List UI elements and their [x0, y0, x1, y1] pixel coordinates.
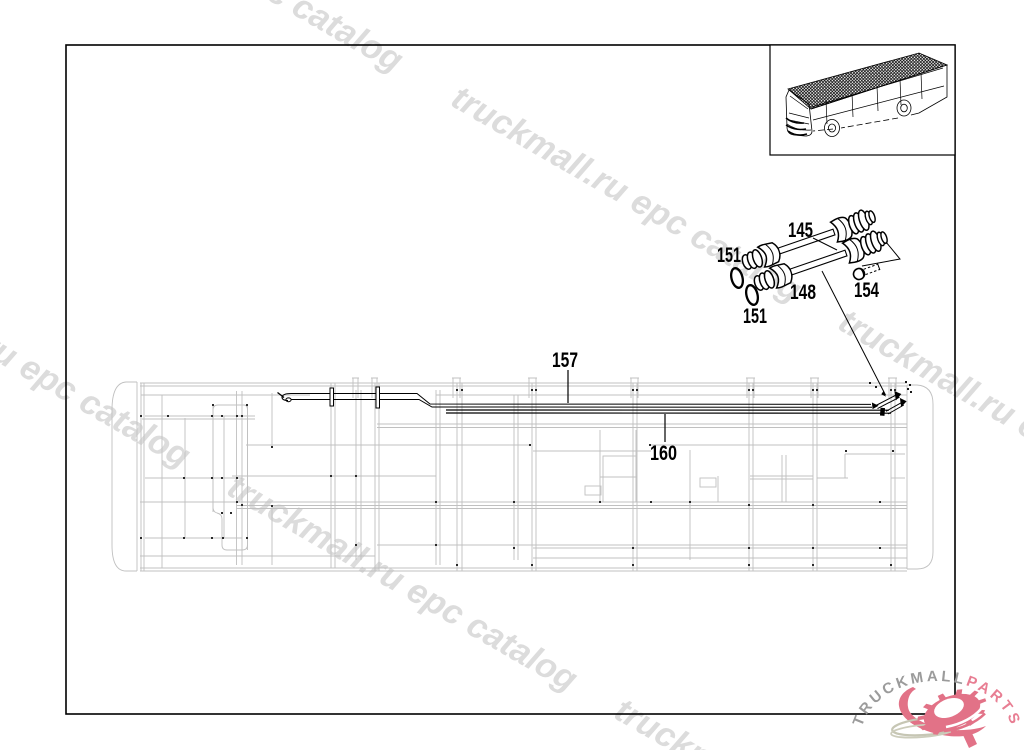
svg-text:157: 157	[552, 349, 578, 372]
svg-text:151: 151	[717, 244, 741, 267]
svg-text:148: 148	[790, 281, 816, 304]
svg-text:151: 151	[743, 305, 767, 328]
svg-text:145: 145	[788, 219, 813, 242]
svg-text:154: 154	[854, 279, 879, 302]
svg-text:160: 160	[650, 442, 677, 465]
